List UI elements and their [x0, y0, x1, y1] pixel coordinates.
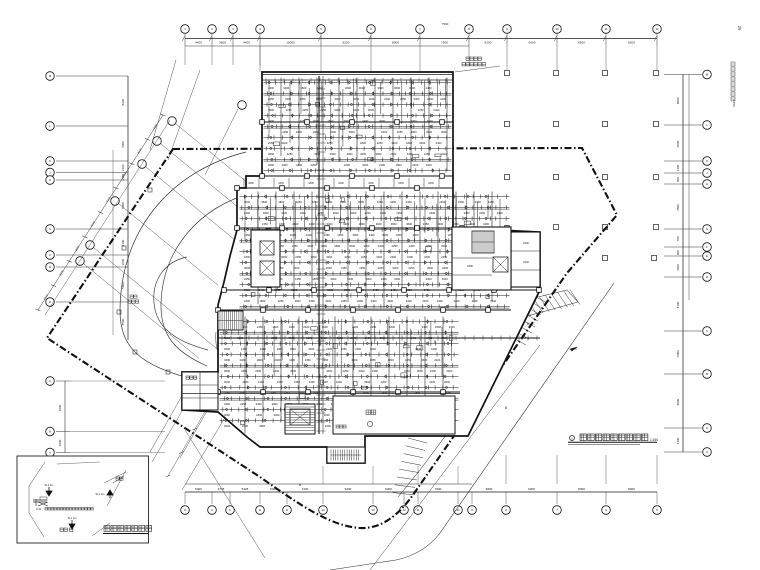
svg-text:3400: 3400	[281, 211, 287, 215]
svg-text:1350: 1350	[337, 233, 343, 237]
svg-text:12: 12	[655, 27, 659, 31]
svg-text:3000: 3000	[392, 266, 398, 270]
svg-text:3400: 3400	[427, 119, 433, 123]
svg-text:4400: 4400	[243, 41, 250, 45]
svg-text:2250: 2250	[392, 244, 398, 248]
svg-text:2400: 2400	[282, 163, 288, 167]
svg-text:2400: 2400	[429, 380, 435, 384]
svg-text:3600: 3600	[345, 86, 351, 90]
svg-text:2400: 2400	[439, 200, 445, 204]
svg-text:D: D	[706, 275, 708, 279]
svg-text:1350: 1350	[292, 244, 298, 248]
svg-text:1:150: 1:150	[732, 99, 736, 107]
svg-text:26: 26	[737, 26, 742, 31]
svg-text:4400: 4400	[195, 41, 202, 45]
svg-text:2400: 2400	[244, 299, 250, 303]
svg-text:2400: 2400	[293, 266, 299, 270]
svg-text:2250: 2250	[400, 97, 406, 101]
svg-text:1350: 1350	[262, 222, 268, 226]
svg-text:3400: 3400	[309, 299, 315, 303]
svg-text:2250: 2250	[418, 108, 424, 112]
svg-text:3600: 3600	[426, 130, 432, 134]
svg-text:2400: 2400	[353, 108, 359, 112]
svg-text:2250: 2250	[343, 369, 349, 373]
svg-text:6000: 6000	[121, 141, 125, 148]
svg-text:1800: 1800	[396, 163, 402, 167]
svg-text:3000: 3000	[308, 347, 314, 351]
svg-text:2400: 2400	[523, 260, 529, 264]
svg-text:3000: 3000	[330, 277, 336, 281]
svg-text:3000: 3000	[413, 233, 419, 237]
svg-text:B: B	[527, 322, 529, 326]
svg-text:4100: 4100	[121, 239, 125, 246]
svg-text:1350: 1350	[324, 233, 330, 237]
svg-text:3600: 3600	[290, 369, 296, 373]
svg-text:3000: 3000	[353, 97, 359, 101]
svg-text:3000: 3000	[344, 119, 350, 123]
svg-text:12: 12	[402, 508, 406, 512]
svg-text:3000: 3000	[350, 211, 356, 215]
svg-text:G: G	[211, 508, 213, 512]
svg-text:2250: 2250	[287, 152, 293, 156]
svg-text:2250: 2250	[296, 200, 302, 204]
svg-text:3000: 3000	[444, 380, 450, 384]
svg-text:7900: 7900	[435, 487, 442, 491]
svg-text:3600: 3600	[406, 222, 412, 226]
svg-text:3400: 3400	[359, 369, 365, 373]
svg-text:2400: 2400	[436, 141, 442, 145]
svg-text:W-1.2m: W-1.2m	[96, 493, 105, 496]
svg-text:1350: 1350	[341, 299, 347, 303]
svg-text:2250: 2250	[378, 266, 384, 270]
svg-text:1350: 1350	[294, 380, 300, 384]
svg-text:1800: 1800	[248, 182, 254, 185]
svg-text:3600: 3600	[333, 211, 339, 215]
svg-text:11: 11	[605, 27, 608, 31]
svg-text:1800: 1800	[467, 264, 473, 268]
svg-text:2400: 2400	[412, 163, 418, 167]
svg-text:3600: 3600	[368, 108, 374, 112]
svg-text:3000: 3000	[411, 130, 417, 134]
svg-text:B: B	[49, 430, 51, 434]
svg-text:3600: 3600	[261, 200, 267, 204]
svg-text:3000: 3000	[347, 152, 353, 156]
svg-text:1800: 1800	[431, 347, 437, 351]
svg-text:E: E	[259, 508, 261, 512]
svg-text:2400: 2400	[429, 211, 435, 215]
svg-text:2400: 2400	[362, 119, 368, 123]
svg-text:3000: 3000	[417, 369, 423, 373]
svg-text:3400: 3400	[340, 200, 346, 204]
svg-text:2400: 2400	[409, 244, 415, 248]
svg-text:8000: 8000	[578, 487, 585, 491]
svg-text:2400: 2400	[523, 241, 529, 245]
svg-text:2400: 2400	[384, 97, 390, 101]
svg-text:2400: 2400	[430, 369, 436, 373]
svg-text:2400: 2400	[472, 299, 478, 303]
svg-text:1350: 1350	[257, 325, 263, 329]
svg-text:2400: 2400	[372, 369, 378, 373]
svg-text:2400: 2400	[390, 255, 396, 259]
svg-text:2250: 2250	[295, 255, 301, 259]
svg-text:1800: 1800	[257, 358, 263, 362]
svg-text:C: C	[706, 329, 708, 333]
svg-text:3400: 3400	[289, 358, 295, 362]
svg-text:8200: 8200	[485, 41, 492, 45]
svg-text:2400: 2400	[422, 299, 428, 303]
svg-text:3400: 3400	[442, 266, 448, 270]
svg-text:2400: 2400	[224, 402, 230, 406]
svg-text:3400: 3400	[336, 380, 342, 384]
svg-text:5400: 5400	[195, 487, 202, 491]
svg-text:3000: 3000	[411, 119, 417, 123]
svg-text:2250: 2250	[312, 200, 318, 204]
svg-text:1350: 1350	[241, 347, 247, 351]
svg-text:3000: 3000	[335, 97, 341, 101]
svg-text:1800: 1800	[360, 141, 366, 145]
svg-text:2400: 2400	[434, 358, 440, 362]
svg-text:2400: 2400	[355, 347, 361, 351]
svg-text:2250: 2250	[302, 108, 308, 112]
svg-text:4400: 4400	[676, 437, 680, 444]
svg-text:8200: 8200	[343, 41, 350, 45]
svg-text:7500: 7500	[441, 41, 448, 45]
svg-text:1350: 1350	[305, 358, 311, 362]
svg-text:2250: 2250	[327, 141, 333, 145]
svg-text:9200: 9200	[528, 487, 535, 491]
svg-text:3600: 3600	[364, 380, 370, 384]
svg-text:B: B	[706, 372, 708, 376]
svg-text:K: K	[706, 159, 708, 163]
svg-text:2250: 2250	[408, 266, 414, 270]
svg-text:3000: 3000	[379, 119, 385, 123]
svg-text:3000: 3000	[313, 119, 319, 123]
svg-text:1350: 1350	[277, 380, 283, 384]
svg-text:2250: 2250	[286, 108, 292, 112]
svg-text:3000: 3000	[325, 299, 331, 303]
svg-text:3400: 3400	[376, 255, 382, 259]
svg-text:A: A	[706, 450, 708, 454]
svg-text:3600: 3600	[219, 41, 226, 45]
svg-text:F: F	[229, 508, 231, 512]
svg-text:900: 900	[676, 250, 680, 255]
svg-text:G: G	[49, 227, 51, 231]
svg-text:2400: 2400	[434, 108, 440, 112]
svg-text:3400: 3400	[406, 299, 412, 303]
svg-text:700: 700	[676, 236, 680, 241]
svg-text:2100: 2100	[676, 164, 680, 171]
svg-text:4500: 4500	[676, 204, 680, 211]
svg-text:3600: 3600	[334, 244, 340, 248]
svg-text:3000: 3000	[330, 152, 336, 156]
svg-text:3600: 3600	[281, 255, 287, 259]
svg-text:1350: 1350	[396, 233, 402, 237]
svg-text:3000: 3000	[224, 347, 230, 351]
svg-text:1800: 1800	[300, 211, 306, 215]
svg-text:3000: 3000	[369, 97, 375, 101]
svg-text:1800: 1800	[359, 222, 365, 226]
svg-text:3600: 3600	[391, 222, 397, 226]
svg-text:2400: 2400	[378, 244, 384, 248]
svg-text:1800: 1800	[406, 141, 412, 145]
svg-text:K: K	[49, 159, 51, 163]
svg-text:3000: 3000	[419, 141, 425, 145]
svg-text:2400: 2400	[371, 299, 377, 303]
svg-text:2400: 2400	[409, 86, 415, 90]
svg-text:3000: 3000	[376, 222, 382, 226]
svg-text:F: F	[49, 253, 51, 257]
svg-text:2000: 2000	[58, 439, 62, 446]
svg-text:1350: 1350	[341, 266, 347, 270]
svg-text:3400: 3400	[394, 277, 400, 281]
svg-text:D: D	[286, 508, 288, 512]
svg-text:1350: 1350	[424, 152, 430, 156]
svg-text:1350: 1350	[282, 130, 288, 134]
svg-text:500: 500	[676, 177, 680, 182]
svg-text:2400: 2400	[449, 325, 455, 329]
svg-text:1800: 1800	[389, 325, 395, 329]
svg-text:14: 14	[321, 508, 325, 512]
svg-text:3600: 3600	[295, 299, 301, 303]
svg-text:2400: 2400	[258, 380, 264, 384]
svg-text:1350: 1350	[381, 380, 387, 384]
svg-text:3600: 3600	[490, 299, 496, 303]
svg-text:1800: 1800	[398, 182, 404, 185]
svg-text:3000: 3000	[321, 244, 327, 248]
svg-text:3000: 3000	[362, 163, 368, 167]
svg-text:8000: 8000	[392, 41, 399, 45]
svg-text:3400: 3400	[424, 255, 430, 259]
svg-text:W-1.2m: W-1.2m	[45, 484, 54, 487]
svg-text:3000: 3000	[311, 255, 317, 259]
svg-text:3400: 3400	[283, 86, 289, 90]
svg-text:4400: 4400	[676, 264, 680, 271]
svg-text:2400: 2400	[427, 97, 433, 101]
svg-text:3000: 3000	[272, 402, 278, 406]
svg-text:1800: 1800	[435, 325, 441, 329]
svg-text:8100: 8100	[676, 301, 680, 308]
svg-text:8000: 8000	[676, 97, 680, 104]
svg-text:2400: 2400	[426, 277, 432, 281]
svg-text:8200: 8200	[628, 41, 635, 45]
svg-text:2250: 2250	[311, 163, 317, 167]
svg-text:W-1.2m: W-1.2m	[68, 517, 77, 520]
svg-text:3000: 3000	[358, 200, 364, 204]
svg-text:3400: 3400	[390, 200, 396, 204]
svg-text:3600: 3600	[224, 369, 230, 373]
svg-text:H: H	[49, 178, 51, 182]
svg-text:3400: 3400	[414, 97, 420, 101]
svg-text:3400: 3400	[369, 233, 375, 237]
svg-text:3000: 3000	[442, 277, 448, 281]
svg-text:2400: 2400	[326, 347, 332, 351]
svg-text:2250: 2250	[397, 130, 403, 134]
svg-text:2400: 2400	[309, 380, 315, 384]
svg-text:3000: 3000	[307, 244, 313, 248]
svg-text:3000: 3000	[359, 86, 365, 90]
svg-text:2250: 2250	[361, 255, 367, 259]
svg-text:1800: 1800	[259, 299, 265, 303]
svg-text:3000: 3000	[224, 380, 230, 384]
svg-text:9200: 9200	[345, 487, 352, 491]
svg-text:3×12: 3×12	[36, 508, 42, 511]
svg-text:10: 10	[555, 27, 559, 31]
svg-text:1350: 1350	[423, 222, 429, 226]
svg-text:1:150: 1:150	[650, 438, 658, 442]
svg-text:G: G	[706, 227, 708, 231]
svg-text:2000: 2000	[121, 258, 125, 265]
svg-text:3400: 3400	[224, 358, 230, 362]
svg-text:2400: 2400	[437, 299, 443, 303]
svg-text:1350: 1350	[295, 277, 301, 281]
svg-text:2250: 2250	[365, 211, 371, 215]
svg-text:2400: 2400	[441, 255, 447, 259]
svg-text:E: E	[706, 254, 708, 258]
svg-text:2400: 2400	[303, 325, 309, 329]
svg-text:4500: 4500	[58, 404, 62, 411]
svg-text:2400: 2400	[275, 358, 281, 362]
svg-text:3000: 3000	[349, 244, 355, 248]
svg-text:3400: 3400	[406, 200, 412, 204]
svg-text:3400: 3400	[256, 402, 262, 406]
svg-text:1800: 1800	[338, 182, 344, 185]
svg-text:3400: 3400	[289, 325, 295, 329]
svg-text:H: H	[706, 182, 708, 186]
svg-text:7200: 7200	[302, 487, 309, 491]
svg-text:F: F	[706, 245, 708, 249]
svg-text:3400: 3400	[483, 222, 489, 226]
svg-text:D: D	[49, 300, 51, 304]
svg-text:1800: 1800	[242, 380, 248, 384]
svg-text:10000: 10000	[286, 41, 295, 45]
svg-text:7500: 7500	[442, 22, 449, 26]
svg-text:3400: 3400	[454, 299, 460, 303]
svg-text:3000: 3000	[326, 255, 332, 259]
svg-text:2250: 2250	[446, 369, 452, 373]
svg-text:3400: 3400	[391, 141, 397, 145]
svg-text:3600: 3600	[421, 358, 427, 362]
svg-text:1800: 1800	[256, 413, 262, 417]
svg-text:13: 13	[371, 508, 375, 512]
svg-text:1800: 1800	[278, 200, 284, 204]
svg-text:2400: 2400	[306, 233, 312, 237]
svg-text:3000: 3000	[268, 163, 274, 167]
svg-text:3400: 3400	[360, 152, 366, 156]
svg-text:1800: 1800	[278, 182, 284, 185]
svg-text:1800: 1800	[296, 163, 302, 167]
svg-text:3000: 3000	[224, 424, 230, 428]
svg-text:2250: 2250	[244, 277, 250, 281]
svg-text:3600: 3600	[314, 152, 320, 156]
svg-text:3000: 3000	[387, 299, 393, 303]
svg-text:2400: 2400	[475, 200, 481, 204]
svg-text:3400: 3400	[363, 244, 369, 248]
svg-text:2250: 2250	[240, 402, 246, 406]
svg-text:3400: 3400	[458, 200, 464, 204]
svg-text:3000: 3000	[382, 233, 388, 237]
svg-text:1350: 1350	[359, 266, 365, 270]
svg-text:1800: 1800	[272, 325, 278, 329]
svg-text:2400: 2400	[281, 141, 287, 145]
svg-text:6800: 6800	[486, 487, 493, 491]
svg-text:H: H	[706, 426, 708, 430]
svg-text:3400: 3400	[274, 413, 280, 417]
svg-text:6200: 6200	[385, 487, 392, 491]
svg-text:E: E	[49, 265, 51, 269]
svg-text:2400: 2400	[390, 152, 396, 156]
svg-text:1350: 1350	[341, 347, 347, 351]
svg-text:1350: 1350	[370, 358, 376, 362]
svg-text:1800: 1800	[357, 299, 363, 303]
svg-text:1350: 1350	[377, 200, 383, 204]
svg-text:6000: 6000	[676, 140, 680, 147]
svg-text:3000: 3000	[441, 244, 447, 248]
svg-text:6500: 6500	[578, 41, 585, 45]
svg-text:1800: 1800	[368, 182, 374, 185]
svg-text:2400: 2400	[344, 163, 350, 167]
svg-text:11: 11	[417, 508, 420, 512]
svg-text:3400: 3400	[285, 97, 291, 101]
svg-text:2400: 2400	[242, 424, 248, 428]
svg-text:3000: 3000	[366, 277, 372, 281]
svg-text:3400: 3400	[415, 347, 421, 351]
svg-text:3400: 3400	[326, 369, 332, 373]
svg-text:2100: 2100	[121, 164, 125, 171]
svg-text:H: H	[184, 508, 186, 512]
svg-text:3400: 3400	[407, 255, 413, 259]
svg-text:3000: 3000	[324, 413, 330, 417]
svg-text:1800: 1800	[428, 182, 434, 185]
svg-text:6000: 6000	[529, 41, 536, 45]
svg-text:8000: 8000	[121, 202, 125, 209]
svg-text:2400: 2400	[255, 369, 261, 373]
svg-text:C: C	[49, 379, 51, 383]
svg-text:3600: 3600	[394, 86, 400, 90]
svg-text:3600: 3600	[244, 266, 250, 270]
svg-text:A: A	[49, 451, 51, 455]
svg-text:8200: 8200	[121, 98, 125, 105]
svg-text:2250: 2250	[320, 108, 326, 112]
svg-text:3600: 3600	[349, 130, 355, 134]
svg-text:2400: 2400	[379, 163, 385, 167]
svg-text:3000: 3000	[353, 233, 359, 237]
svg-text:6500: 6500	[121, 318, 125, 325]
svg-text:1800: 1800	[263, 211, 269, 215]
svg-text:2400: 2400	[381, 130, 387, 134]
svg-text:5325: 5325	[242, 487, 249, 491]
svg-text:8000: 8000	[676, 398, 680, 405]
svg-text:3000: 3000	[224, 413, 230, 417]
svg-text:1350: 1350	[300, 97, 306, 101]
svg-text:3600: 3600	[259, 424, 265, 428]
svg-text:2250: 2250	[479, 211, 485, 215]
svg-text:3000: 3000	[334, 108, 340, 112]
svg-text:1350: 1350	[488, 200, 494, 204]
svg-text:2250: 2250	[377, 141, 383, 145]
svg-text:1800: 1800	[308, 182, 314, 185]
svg-text:3600: 3600	[326, 266, 332, 270]
svg-text:2400: 2400	[325, 424, 331, 428]
svg-text:8200: 8200	[628, 487, 635, 491]
svg-text:3000: 3000	[376, 152, 382, 156]
svg-text:2250: 2250	[278, 299, 284, 303]
svg-text:3000: 3000	[427, 266, 433, 270]
svg-text:2400: 2400	[426, 163, 432, 167]
svg-text:3000: 3000	[441, 130, 447, 134]
svg-text:3600: 3600	[268, 152, 274, 156]
svg-text:1800: 1800	[351, 358, 357, 362]
svg-text:5000: 5000	[676, 350, 680, 357]
